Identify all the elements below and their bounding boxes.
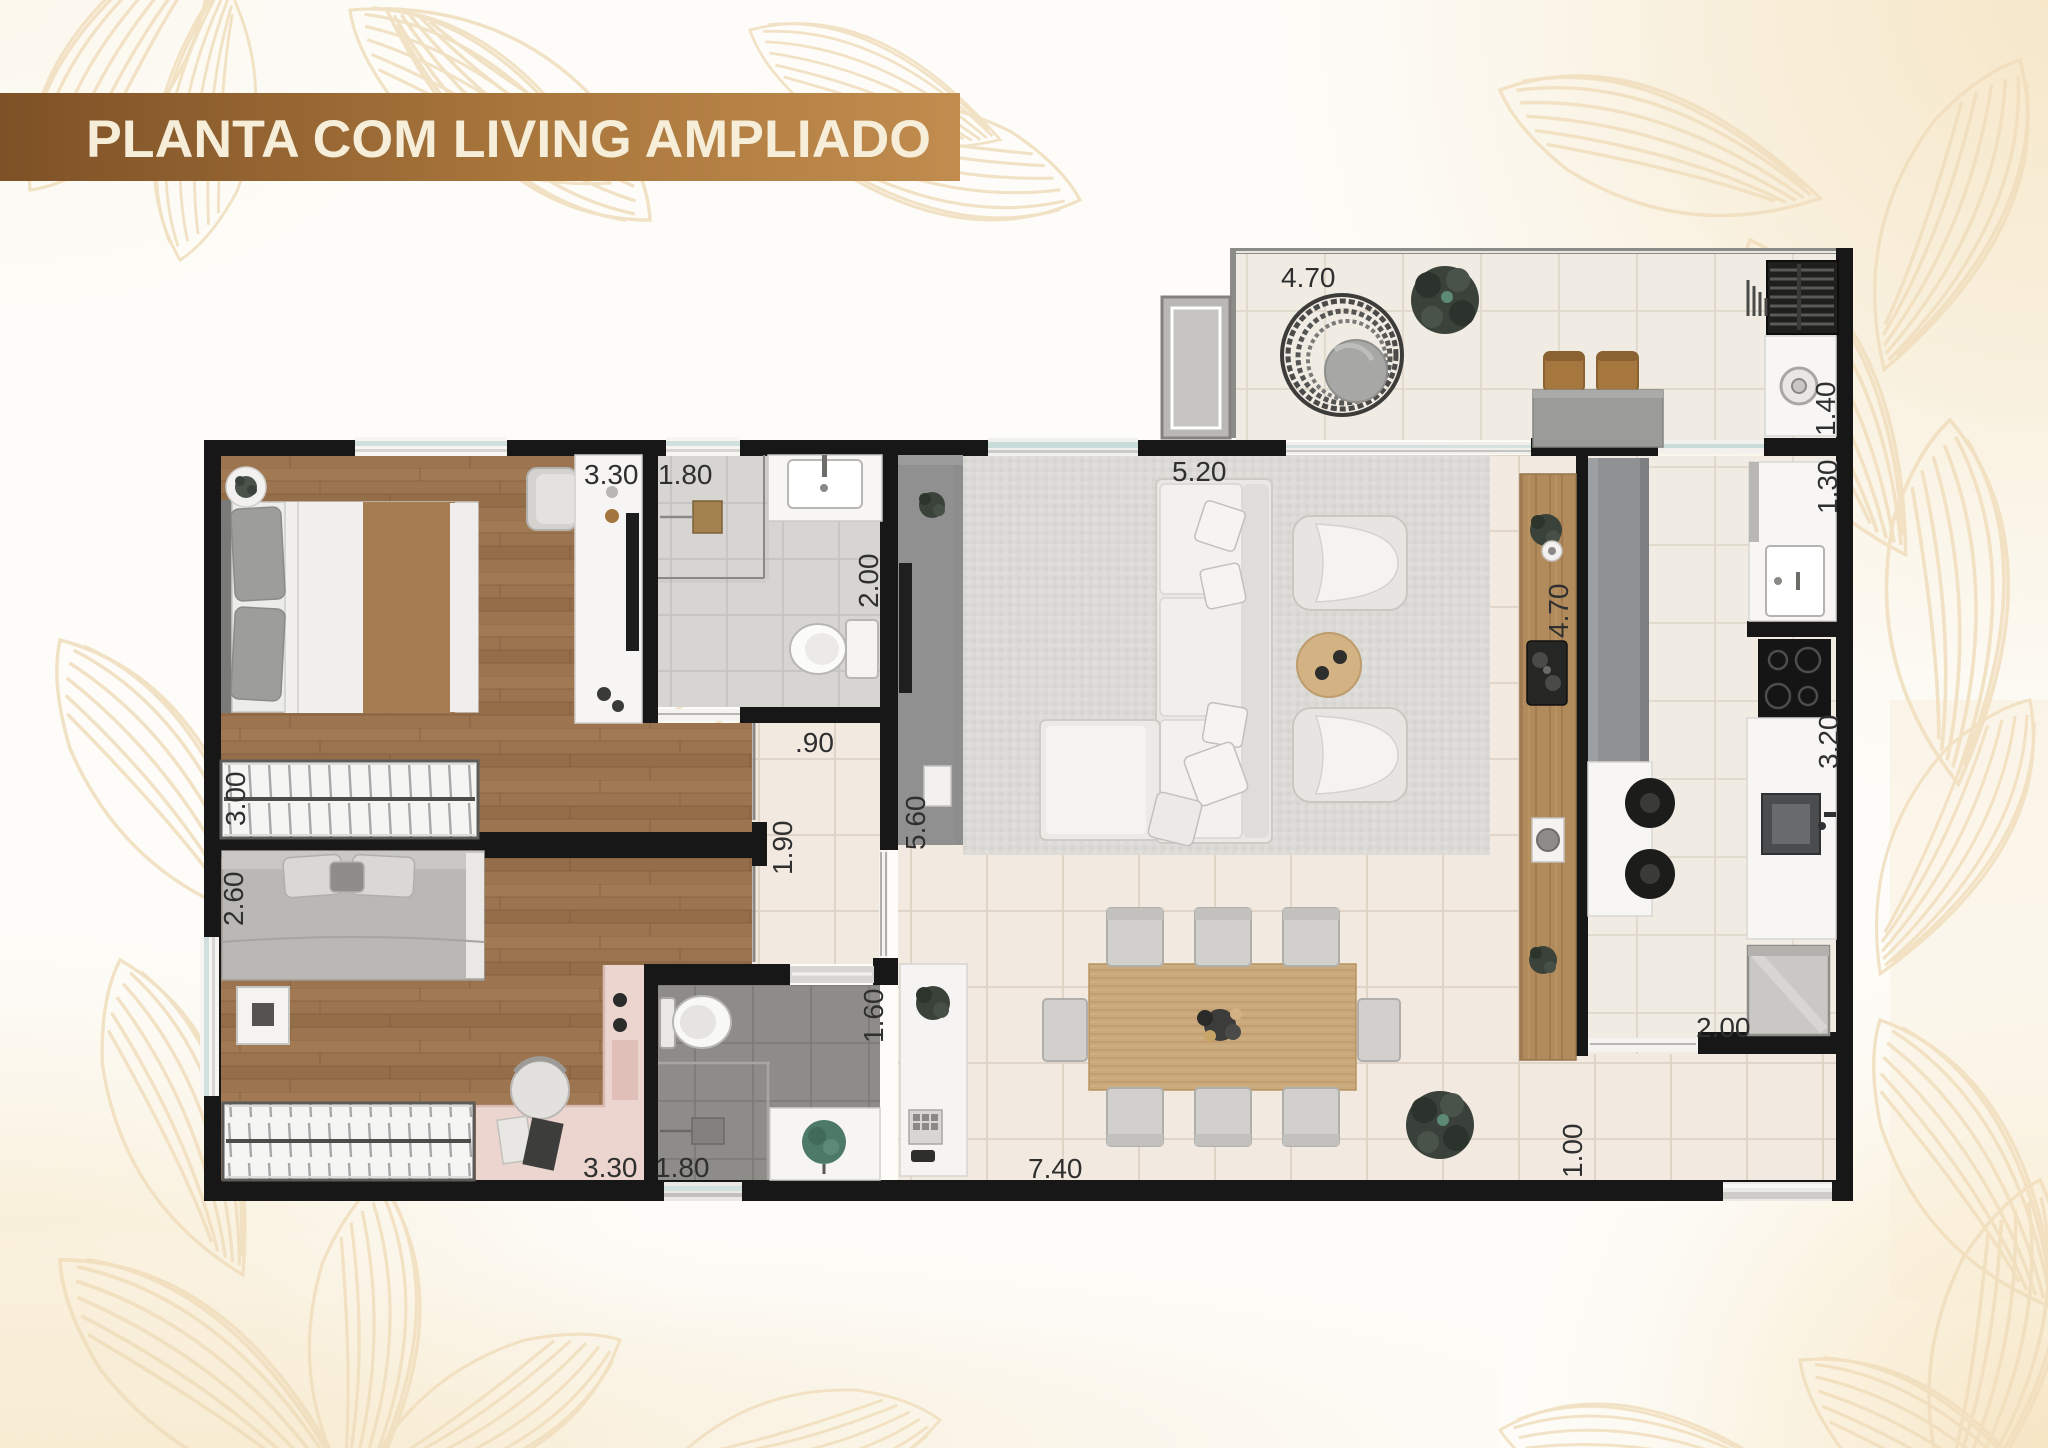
svg-text:4.70: 4.70 (1543, 584, 1574, 639)
svg-text:2.60: 2.60 (218, 872, 249, 927)
svg-text:1.60: 1.60 (858, 989, 889, 1044)
svg-text:1.90: 1.90 (767, 821, 798, 876)
svg-text:5.20: 5.20 (1172, 456, 1227, 487)
svg-text:.90: .90 (795, 727, 834, 758)
svg-text:1.30: 1.30 (1812, 460, 1843, 515)
svg-text:1.00: 1.00 (1557, 1124, 1588, 1179)
svg-text:7.40: 7.40 (1028, 1153, 1083, 1184)
svg-text:3.30: 3.30 (583, 1152, 638, 1183)
svg-text:2.00: 2.00 (853, 554, 884, 609)
svg-text:1.80: 1.80 (658, 459, 713, 490)
svg-text:4.70: 4.70 (1281, 262, 1336, 293)
svg-text:1.40: 1.40 (1810, 382, 1841, 437)
svg-text:PLANTA COM LIVING AMPLIADO: PLANTA COM LIVING AMPLIADO (86, 110, 931, 169)
svg-text:5.60: 5.60 (900, 796, 931, 851)
svg-text:3.20: 3.20 (1813, 715, 1844, 770)
svg-text:3.30: 3.30 (584, 459, 639, 490)
svg-text:1.80: 1.80 (655, 1152, 710, 1183)
svg-text:2.00: 2.00 (1696, 1012, 1751, 1043)
svg-text:3.00: 3.00 (220, 772, 251, 827)
